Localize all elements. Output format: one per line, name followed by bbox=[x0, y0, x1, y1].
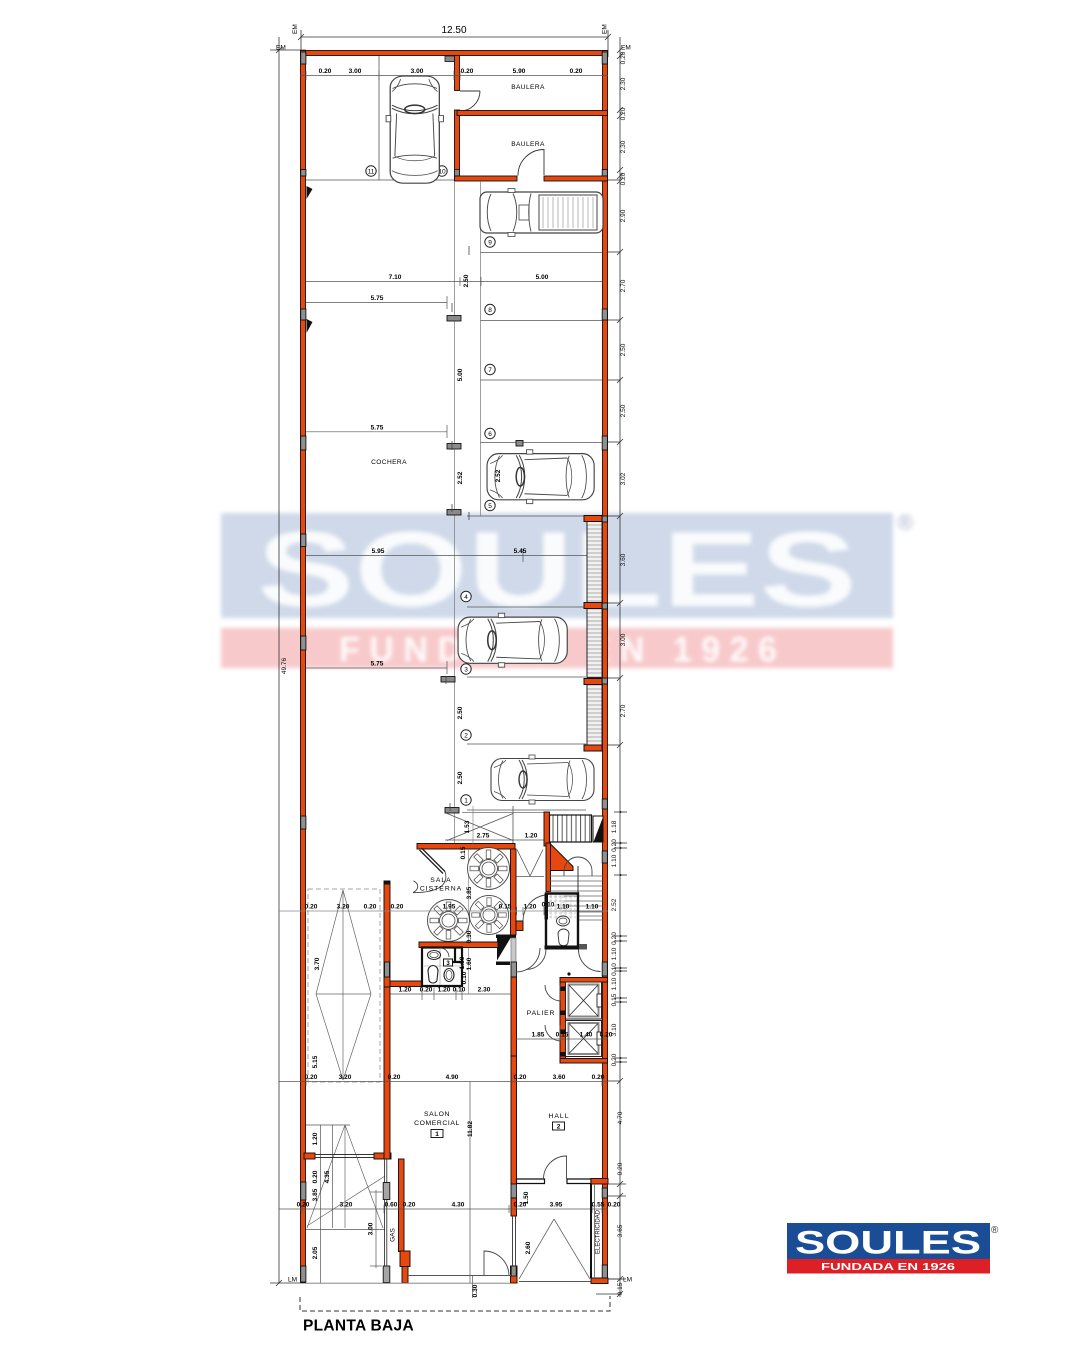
svg-text:0.20: 0.20 bbox=[319, 68, 332, 75]
svg-text:6: 6 bbox=[488, 431, 492, 438]
svg-text:PLANTA BAJA: PLANTA BAJA bbox=[303, 1318, 414, 1335]
svg-text:0.15: 0.15 bbox=[611, 993, 618, 1006]
svg-text:4.35: 4.35 bbox=[324, 1170, 331, 1183]
svg-text:®: ® bbox=[897, 510, 913, 535]
svg-text:5.90: 5.90 bbox=[513, 68, 526, 75]
svg-text:2.50: 2.50 bbox=[620, 404, 627, 417]
svg-text:0.20: 0.20 bbox=[461, 68, 474, 75]
svg-text:2.50: 2.50 bbox=[463, 274, 470, 287]
svg-text:0.60: 0.60 bbox=[385, 1202, 398, 1209]
svg-text:0.15: 0.15 bbox=[617, 1282, 624, 1295]
svg-text:2.52: 2.52 bbox=[611, 898, 618, 911]
svg-text:3.20: 3.20 bbox=[340, 1202, 353, 1209]
svg-text:SALON: SALON bbox=[424, 1111, 450, 1118]
svg-text:0.15: 0.15 bbox=[460, 846, 467, 859]
svg-text:3.85: 3.85 bbox=[466, 886, 473, 899]
svg-text:1.95: 1.95 bbox=[443, 904, 456, 911]
svg-text:5.75: 5.75 bbox=[371, 661, 384, 668]
svg-text:1: 1 bbox=[464, 798, 468, 805]
svg-text:0.20: 0.20 bbox=[403, 1202, 416, 1209]
svg-text:3.95: 3.95 bbox=[550, 1202, 563, 1209]
svg-text:0.20: 0.20 bbox=[297, 1202, 310, 1209]
svg-text:0.20: 0.20 bbox=[620, 172, 627, 185]
svg-text:7.10: 7.10 bbox=[389, 274, 402, 281]
svg-text:0.20: 0.20 bbox=[305, 1074, 318, 1081]
svg-text:5.00: 5.00 bbox=[536, 274, 549, 281]
svg-text:5.95: 5.95 bbox=[372, 548, 385, 555]
svg-text:3.00: 3.00 bbox=[349, 68, 362, 75]
svg-text:0.10: 0.10 bbox=[542, 902, 555, 909]
svg-text:4.90: 4.90 bbox=[446, 1074, 459, 1081]
svg-text:1.40: 1.40 bbox=[580, 1032, 593, 1039]
svg-text:11.82: 11.82 bbox=[467, 1121, 474, 1137]
svg-text:1.53: 1.53 bbox=[464, 820, 471, 833]
svg-text:1.50: 1.50 bbox=[523, 1191, 530, 1204]
svg-text:EM: EM bbox=[292, 24, 299, 34]
svg-text:1.10: 1.10 bbox=[611, 854, 618, 867]
svg-text:1.18: 1.18 bbox=[611, 820, 618, 833]
svg-text:0.20: 0.20 bbox=[420, 987, 433, 994]
svg-text:0.15: 0.15 bbox=[556, 1032, 569, 1039]
svg-text:49.76: 49.76 bbox=[281, 657, 288, 674]
svg-text:4.70: 4.70 bbox=[617, 1111, 624, 1124]
svg-text:0.20: 0.20 bbox=[514, 1074, 527, 1081]
svg-text:LM: LM bbox=[623, 1277, 632, 1284]
svg-text:1.20: 1.20 bbox=[438, 987, 451, 994]
svg-text:1.10: 1.10 bbox=[611, 977, 618, 990]
svg-text:0.20: 0.20 bbox=[592, 1074, 605, 1081]
svg-text:3.20: 3.20 bbox=[339, 1074, 352, 1081]
svg-text:5.75: 5.75 bbox=[371, 295, 384, 302]
svg-text:1.20: 1.20 bbox=[312, 1132, 319, 1145]
svg-text:2: 2 bbox=[557, 1124, 561, 1131]
svg-text:SALA: SALA bbox=[430, 877, 451, 884]
svg-text:0.20: 0.20 bbox=[364, 904, 377, 911]
svg-text:4.30: 4.30 bbox=[452, 1202, 465, 1209]
svg-text:1.10: 1.10 bbox=[557, 904, 570, 911]
svg-text:EM: EM bbox=[276, 45, 286, 52]
svg-text:2.50: 2.50 bbox=[620, 343, 627, 356]
svg-text:FUNDADA EN 1926: FUNDADA EN 1926 bbox=[821, 1262, 956, 1273]
svg-text:8: 8 bbox=[488, 307, 492, 314]
svg-text:2: 2 bbox=[464, 733, 468, 740]
svg-text:3.85: 3.85 bbox=[312, 1188, 319, 1201]
svg-text:1.60: 1.60 bbox=[466, 957, 473, 970]
svg-text:0.20: 0.20 bbox=[617, 1162, 624, 1175]
svg-text:0.15: 0.15 bbox=[499, 904, 512, 911]
svg-text:7: 7 bbox=[488, 367, 492, 374]
svg-text:1.20: 1.20 bbox=[524, 904, 537, 911]
svg-text:2.05: 2.05 bbox=[312, 1246, 319, 1259]
svg-text:LM: LM bbox=[288, 1277, 297, 1284]
svg-text:5.00: 5.00 bbox=[457, 368, 464, 381]
svg-text:3.60: 3.60 bbox=[620, 553, 627, 566]
svg-text:2.90: 2.90 bbox=[620, 209, 627, 222]
svg-text:BAULERA: BAULERA bbox=[511, 141, 545, 148]
svg-text:BAULERA: BAULERA bbox=[511, 84, 545, 91]
svg-text:5.15: 5.15 bbox=[312, 1055, 319, 1068]
svg-text:0.20: 0.20 bbox=[570, 68, 583, 75]
svg-text:1.50: 1.50 bbox=[459, 956, 466, 969]
svg-text:4: 4 bbox=[464, 594, 468, 601]
svg-text:2.30: 2.30 bbox=[620, 77, 627, 90]
svg-text:0.10: 0.10 bbox=[461, 971, 468, 984]
svg-text:5.75: 5.75 bbox=[371, 425, 384, 432]
svg-text:1.10: 1.10 bbox=[586, 904, 599, 911]
svg-text:2.50: 2.50 bbox=[457, 771, 464, 784]
svg-text:3.00: 3.00 bbox=[620, 633, 627, 646]
svg-text:3.20: 3.20 bbox=[337, 904, 350, 911]
svg-text:3.00: 3.00 bbox=[411, 68, 424, 75]
svg-text:3.70: 3.70 bbox=[314, 957, 321, 970]
svg-text:®: ® bbox=[991, 1225, 999, 1236]
svg-text:3.60: 3.60 bbox=[553, 1074, 566, 1081]
svg-text:GAS: GAS bbox=[390, 1227, 397, 1241]
svg-text:0.20: 0.20 bbox=[391, 904, 404, 911]
svg-text:3: 3 bbox=[464, 667, 468, 674]
svg-text:9: 9 bbox=[488, 240, 492, 247]
svg-text:SOULES: SOULES bbox=[257, 509, 857, 629]
svg-text:0.20: 0.20 bbox=[608, 1202, 621, 1209]
svg-text:3.02: 3.02 bbox=[620, 472, 627, 485]
svg-text:1: 1 bbox=[435, 1131, 439, 1138]
svg-text:0.20: 0.20 bbox=[312, 1170, 319, 1183]
svg-text:1.10: 1.10 bbox=[611, 947, 618, 960]
svg-text:COMERCIAL: COMERCIAL bbox=[414, 1120, 460, 1127]
svg-text:SOULES: SOULES bbox=[795, 1225, 981, 1261]
svg-text:3.65: 3.65 bbox=[617, 1224, 624, 1237]
svg-text:0.30: 0.30 bbox=[472, 1284, 479, 1297]
svg-text:2.30: 2.30 bbox=[478, 987, 491, 994]
svg-text:5: 5 bbox=[488, 503, 492, 510]
svg-text:5.45: 5.45 bbox=[514, 548, 527, 555]
svg-text:PALIER: PALIER bbox=[527, 1010, 555, 1017]
svg-text:0.20: 0.20 bbox=[611, 932, 618, 945]
svg-text:HALL: HALL bbox=[548, 1113, 569, 1120]
svg-text:0.20: 0.20 bbox=[305, 904, 318, 911]
svg-text:2.75: 2.75 bbox=[477, 833, 490, 840]
svg-text:0.20: 0.20 bbox=[611, 839, 618, 852]
svg-text:0.10: 0.10 bbox=[611, 963, 618, 976]
svg-text:2.50: 2.50 bbox=[457, 706, 464, 719]
svg-text:2.70: 2.70 bbox=[620, 704, 627, 717]
svg-text:0.20: 0.20 bbox=[600, 1032, 613, 1039]
svg-text:1.20: 1.20 bbox=[525, 833, 538, 840]
svg-text:1.20: 1.20 bbox=[399, 987, 412, 994]
svg-text:0.20: 0.20 bbox=[388, 1074, 401, 1081]
svg-text:EM: EM bbox=[602, 24, 609, 34]
svg-text:12.50: 12.50 bbox=[441, 25, 466, 36]
svg-text:0.10: 0.10 bbox=[453, 987, 466, 994]
svg-text:1.85: 1.85 bbox=[532, 1032, 545, 1039]
svg-text:0.20: 0.20 bbox=[620, 107, 627, 120]
svg-text:ELECTRICIDAD: ELECTRICIDAD bbox=[596, 1209, 602, 1254]
svg-text:0.20: 0.20 bbox=[620, 51, 627, 64]
svg-text:0.30: 0.30 bbox=[466, 930, 473, 943]
svg-text:0.55: 0.55 bbox=[592, 1202, 605, 1209]
svg-text:3.00: 3.00 bbox=[368, 1222, 375, 1235]
svg-text:2.60: 2.60 bbox=[525, 1241, 532, 1254]
svg-text:CISTERNA: CISTERNA bbox=[420, 886, 462, 893]
svg-text:2.52: 2.52 bbox=[457, 471, 464, 484]
svg-text:2.70: 2.70 bbox=[620, 279, 627, 292]
svg-text:11: 11 bbox=[368, 169, 375, 176]
svg-text:COCHERA: COCHERA bbox=[371, 459, 407, 466]
svg-text:2.30: 2.30 bbox=[620, 140, 627, 153]
svg-text:2.52: 2.52 bbox=[495, 469, 502, 482]
svg-text:0.20: 0.20 bbox=[611, 1053, 618, 1066]
